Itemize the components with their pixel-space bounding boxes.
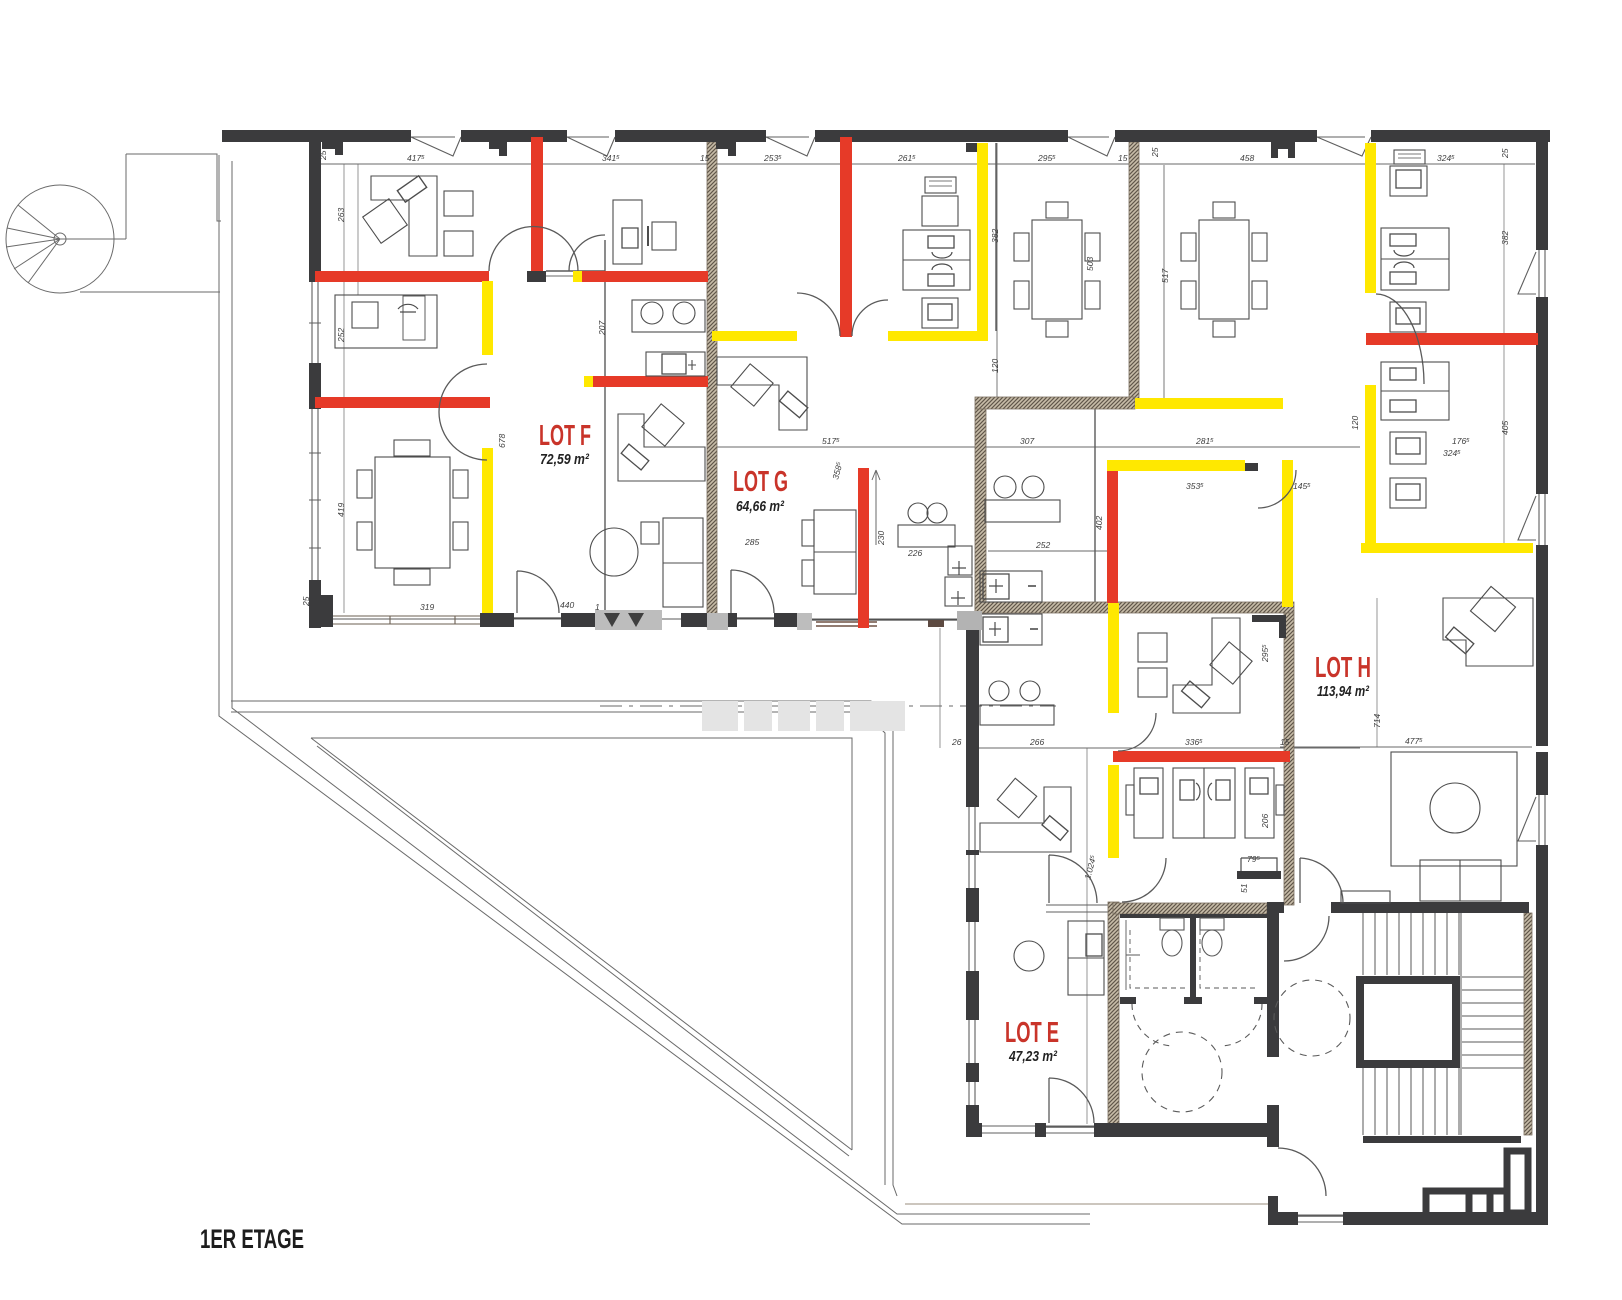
svg-text:145⁵: 145⁵ — [1293, 481, 1311, 491]
svg-text:25: 25 — [1500, 148, 1510, 159]
svg-text:25: 25 — [1150, 147, 1160, 158]
svg-text:64,66 m²: 64,66 m² — [736, 498, 785, 515]
svg-text:477⁵: 477⁵ — [1405, 736, 1423, 746]
svg-text:LOT E: LOT E — [1005, 1017, 1059, 1049]
svg-text:503: 503 — [1085, 257, 1095, 271]
svg-text:25: 25 — [318, 150, 328, 161]
svg-text:120: 120 — [990, 359, 1000, 373]
svg-text:1ER ETAGE: 1ER ETAGE — [200, 1224, 304, 1254]
svg-text:79⁵: 79⁵ — [1247, 854, 1260, 864]
svg-text:252: 252 — [336, 328, 346, 343]
svg-text:26: 26 — [951, 737, 962, 747]
svg-text:319: 319 — [420, 602, 434, 612]
svg-text:281⁵: 281⁵ — [1195, 436, 1214, 446]
svg-text:113,94 m²: 113,94 m² — [1317, 683, 1370, 700]
svg-text:353⁵: 353⁵ — [1186, 481, 1204, 491]
svg-text:51: 51 — [1239, 883, 1249, 893]
svg-text:405: 405 — [1500, 421, 1510, 435]
svg-text:440: 440 — [560, 600, 574, 610]
svg-text:253⁵: 253⁵ — [763, 153, 782, 163]
svg-text:261⁵: 261⁵ — [897, 153, 916, 163]
svg-text:120: 120 — [1350, 416, 1360, 430]
svg-text:307: 307 — [1020, 436, 1034, 446]
svg-text:15: 15 — [1280, 737, 1290, 747]
svg-text:336⁵: 336⁵ — [1185, 737, 1203, 747]
svg-text:1: 1 — [595, 602, 600, 612]
svg-text:324⁵: 324⁵ — [1443, 448, 1461, 458]
svg-text:417⁵: 417⁵ — [407, 153, 425, 163]
svg-text:678: 678 — [497, 434, 507, 448]
svg-text:295⁵: 295⁵ — [1260, 644, 1270, 663]
svg-text:341⁵: 341⁵ — [602, 153, 620, 163]
svg-text:230: 230 — [876, 531, 886, 546]
svg-text:72,59 m²: 72,59 m² — [540, 451, 590, 468]
svg-text:266: 266 — [1029, 737, 1044, 747]
svg-text:15: 15 — [700, 153, 710, 163]
svg-text:419: 419 — [336, 503, 346, 517]
svg-text:LOT H: LOT H — [1315, 652, 1371, 684]
svg-text:206: 206 — [1260, 814, 1270, 829]
svg-text:402: 402 — [1094, 516, 1104, 530]
svg-text:295⁵: 295⁵ — [1037, 153, 1056, 163]
svg-text:324⁵: 324⁵ — [1437, 153, 1455, 163]
svg-text:382: 382 — [990, 229, 1000, 243]
svg-text:176⁵: 176⁵ — [1452, 436, 1470, 446]
svg-text:25: 25 — [301, 596, 311, 607]
svg-text:517⁵: 517⁵ — [822, 436, 840, 446]
svg-text:47,23 m²: 47,23 m² — [1008, 1048, 1058, 1065]
svg-text:226: 226 — [907, 548, 922, 558]
svg-text:263: 263 — [336, 208, 346, 223]
svg-text:LOT F: LOT F — [539, 420, 591, 452]
svg-text:382: 382 — [1500, 231, 1510, 245]
svg-text:207: 207 — [597, 321, 607, 336]
svg-text:714: 714 — [1372, 714, 1382, 728]
svg-text:285: 285 — [744, 537, 759, 547]
svg-text:15: 15 — [1118, 153, 1128, 163]
svg-text:LOT G: LOT G — [733, 466, 788, 498]
svg-text:517: 517 — [1160, 269, 1170, 283]
svg-text:458: 458 — [1240, 153, 1254, 163]
svg-text:252: 252 — [1035, 540, 1050, 550]
